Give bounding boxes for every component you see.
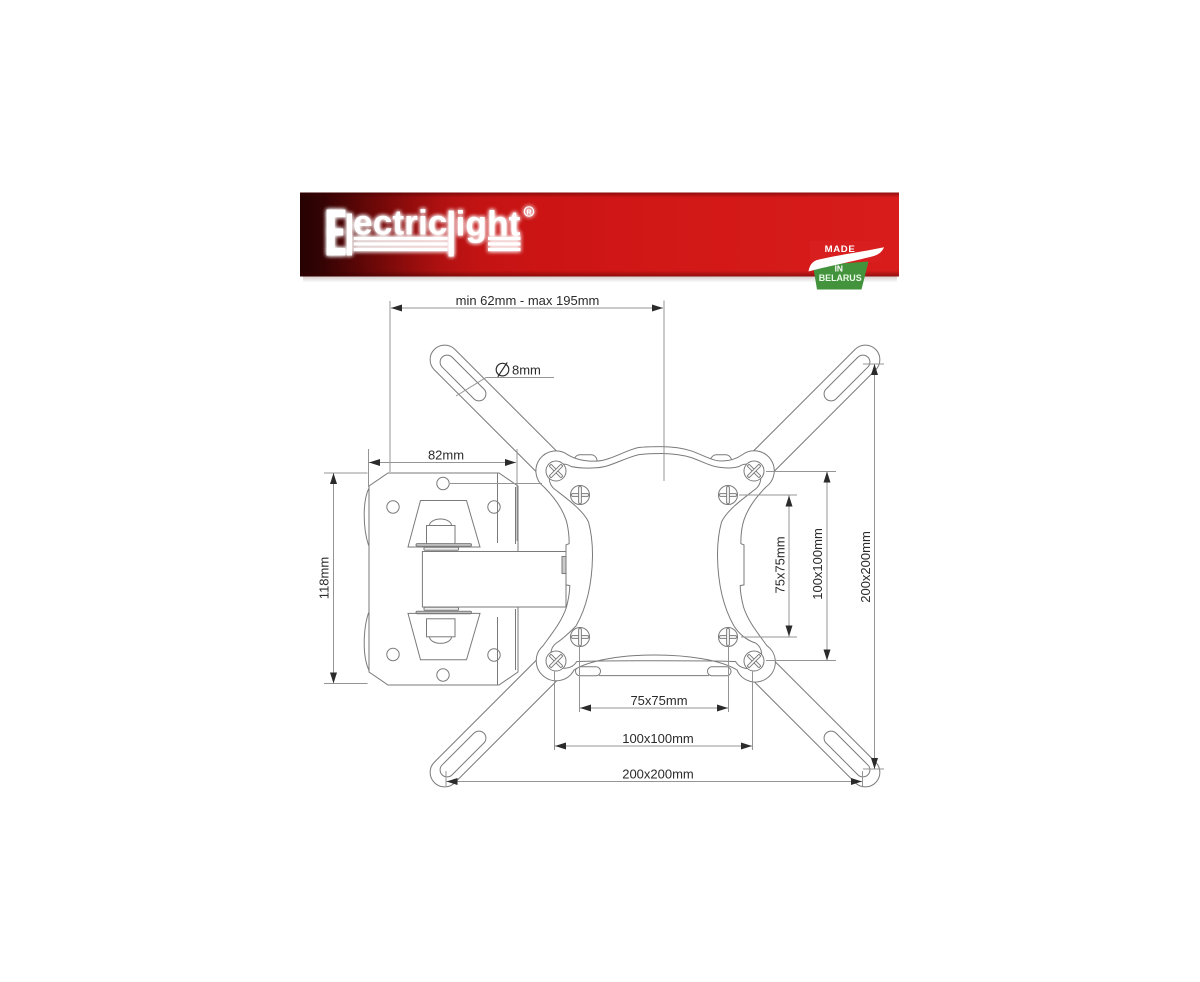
svg-text:8mm: 8mm <box>512 363 541 378</box>
svg-text:200x200mm: 200x200mm <box>622 767 694 782</box>
svg-text:118mm: 118mm <box>317 557 332 599</box>
svg-text:ectric: ectric <box>353 204 448 243</box>
svg-text:R: R <box>526 209 531 216</box>
svg-text:min 62mm - max 195mm: min 62mm - max 195mm <box>456 293 600 308</box>
svg-text:MADE: MADE <box>825 244 856 255</box>
svg-text:75x75mm: 75x75mm <box>630 693 687 708</box>
svg-text:75x75mm: 75x75mm <box>773 536 788 593</box>
svg-text:82mm: 82mm <box>428 448 464 463</box>
svg-text:BELARUS: BELARUS <box>819 273 862 283</box>
svg-text:200x200mm: 200x200mm <box>858 531 873 603</box>
svg-text:100x100mm: 100x100mm <box>622 731 694 746</box>
svg-text:100x100mm: 100x100mm <box>810 528 825 600</box>
